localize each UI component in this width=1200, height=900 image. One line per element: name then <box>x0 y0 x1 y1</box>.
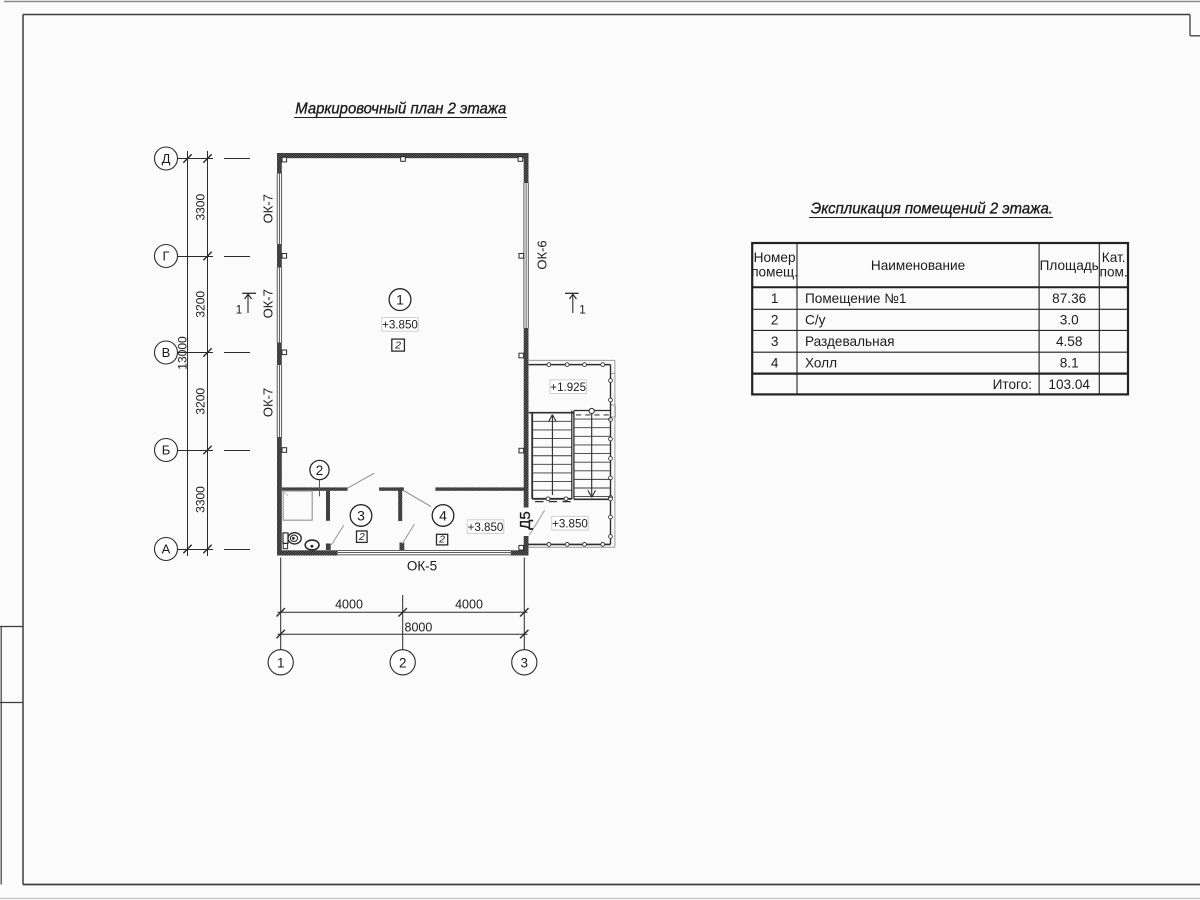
svg-text:Кат.: Кат. <box>1102 250 1126 265</box>
svg-text:8000: 8000 <box>405 620 433 634</box>
svg-text:Б: Б <box>162 443 171 458</box>
svg-text:2: 2 <box>394 340 401 352</box>
svg-text:+3.850: +3.850 <box>382 319 418 332</box>
svg-text:Наименование: Наименование <box>871 258 965 273</box>
svg-text:4: 4 <box>771 356 779 371</box>
svg-text:Г: Г <box>162 249 169 264</box>
svg-text:С/у: С/у <box>805 313 826 328</box>
svg-text:2: 2 <box>316 463 324 478</box>
svg-text:+3.850: +3.850 <box>552 517 588 530</box>
svg-text:4: 4 <box>439 508 447 524</box>
svg-text:3200: 3200 <box>194 388 208 415</box>
svg-text:2: 2 <box>771 313 779 328</box>
svg-text:пом.: пом. <box>1100 265 1128 280</box>
svg-text:3300: 3300 <box>194 486 208 513</box>
svg-text:3: 3 <box>521 655 529 670</box>
svg-text:1: 1 <box>579 303 586 317</box>
svg-text:ОК-5: ОК-5 <box>407 559 437 574</box>
svg-text:Площадь: Площадь <box>1040 258 1099 273</box>
svg-text:Д: Д <box>162 151 171 166</box>
svg-text:Раздевальная: Раздевальная <box>805 334 895 349</box>
svg-text:ОК-7: ОК-7 <box>261 194 276 223</box>
svg-text:87.36: 87.36 <box>1052 291 1086 306</box>
svg-text:Маркировочный план 2 этажа: Маркировочный план 2 этажа <box>295 101 506 118</box>
svg-text:3300: 3300 <box>194 194 208 221</box>
svg-text:3: 3 <box>771 334 779 349</box>
svg-text:103.04: 103.04 <box>1048 377 1090 392</box>
svg-text:ОК-7: ОК-7 <box>261 289 276 318</box>
svg-text:4.58: 4.58 <box>1056 334 1082 349</box>
svg-text:2: 2 <box>358 531 365 543</box>
svg-text:4000: 4000 <box>455 597 483 611</box>
svg-text:Итого:: Итого: <box>993 377 1032 392</box>
svg-text:Помещение №1: Помещение №1 <box>805 291 906 306</box>
svg-text:+3.850: +3.850 <box>468 521 504 534</box>
svg-text:ОК-6: ОК-6 <box>535 240 550 269</box>
svg-text:1: 1 <box>236 303 243 317</box>
svg-text:2: 2 <box>438 534 445 546</box>
svg-text:А: А <box>162 542 171 557</box>
svg-text:1: 1 <box>277 655 285 670</box>
svg-text:8.1: 8.1 <box>1060 356 1079 371</box>
svg-text:помещ.: помещ. <box>751 265 798 280</box>
svg-text:ОК-7: ОК-7 <box>261 388 276 417</box>
svg-text:Холл: Холл <box>805 356 837 371</box>
svg-text:13000: 13000 <box>175 336 189 370</box>
svg-text:3.0: 3.0 <box>1060 313 1079 328</box>
svg-text:Д5: Д5 <box>517 511 534 530</box>
svg-text:3: 3 <box>357 508 365 524</box>
svg-text:4000: 4000 <box>335 597 363 611</box>
svg-text:В: В <box>162 345 171 360</box>
svg-text:3200: 3200 <box>194 291 208 318</box>
svg-text:2: 2 <box>399 655 407 670</box>
svg-text:1: 1 <box>396 292 404 308</box>
svg-text:+1.925: +1.925 <box>550 381 586 394</box>
svg-text:Экспликация помещений 2 этажа.: Экспликация помещений 2 этажа. <box>811 201 1053 218</box>
svg-text:1: 1 <box>771 291 779 306</box>
svg-text:Номер: Номер <box>754 250 796 265</box>
